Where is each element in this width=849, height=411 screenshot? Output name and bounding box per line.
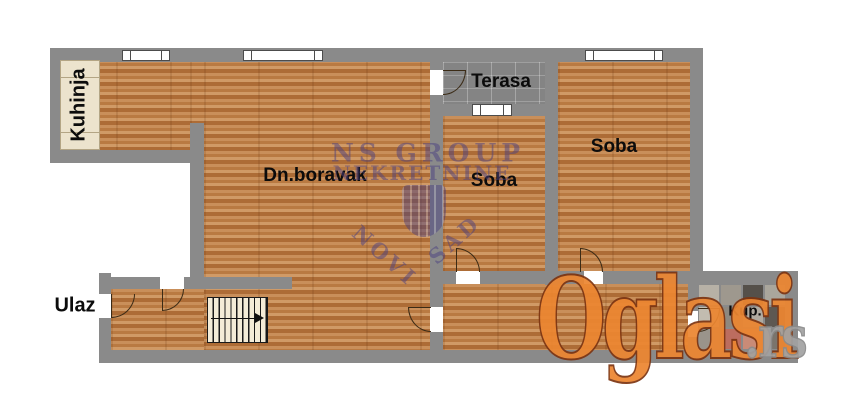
- room-label-ulaz: Ulaz: [54, 295, 95, 318]
- corridor-door-opening: [160, 277, 184, 289]
- site-watermark-tld: .rs: [744, 308, 806, 366]
- stairs-direction-line: [211, 318, 257, 319]
- stairs-direction-arrow: [255, 313, 264, 323]
- entrance-opening: [99, 294, 111, 318]
- window-top-left: [122, 50, 170, 61]
- window-top-right: [585, 50, 663, 61]
- terrace-door-opening: [430, 70, 443, 95]
- wall-right: [690, 48, 703, 284]
- agency-watermark-line2: NEKRETNINE: [333, 161, 512, 185]
- right-room-floor: [558, 60, 690, 271]
- window-terrace: [472, 104, 512, 116]
- window-top-middle: [243, 50, 323, 61]
- room-label-terasa: Terasa: [471, 71, 531, 93]
- floor-plan: Kuhinja Dn.boravak Terasa Soba Soba Ulaz…: [0, 0, 849, 411]
- wall-kitchen-bottom: [50, 150, 204, 163]
- kitchen-passage-floor: [190, 60, 204, 123]
- wall-corridor-top: [99, 277, 292, 289]
- staircase: [207, 297, 268, 343]
- agency-shield-emblem: [402, 185, 446, 237]
- wall-room-divider: [545, 48, 558, 285]
- room-label-soba-right: Soba: [591, 136, 637, 158]
- wall-mid-vertical: [190, 123, 204, 289]
- hall-door-opening: [430, 307, 443, 332]
- room-label-kuhinja: Kuhinja: [68, 68, 91, 141]
- middle-room-door-opening: [456, 271, 480, 284]
